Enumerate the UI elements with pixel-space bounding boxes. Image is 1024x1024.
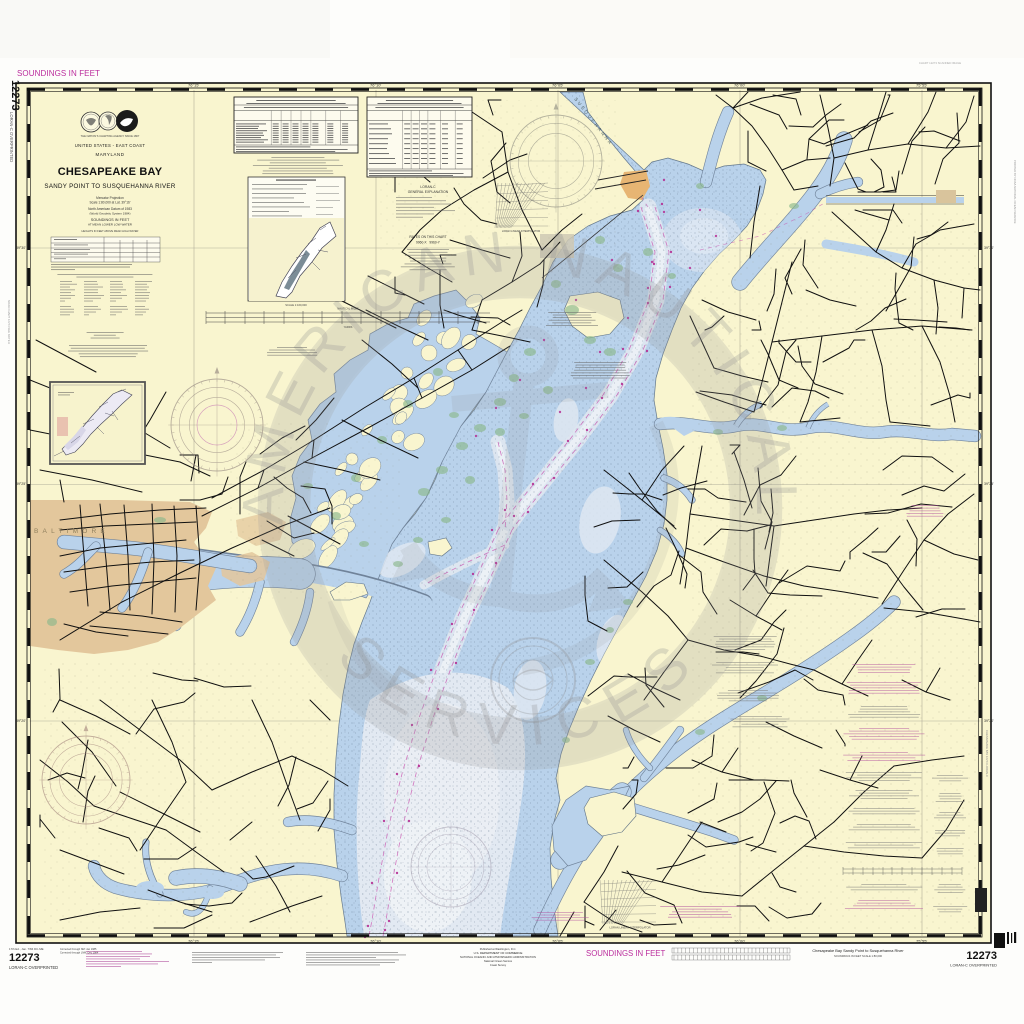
svg-text:Coast Survey: Coast Survey	[490, 963, 507, 967]
svg-text:76°05': 76°05'	[552, 83, 563, 88]
svg-text:HEIGHTS IN FEET ABOVE MEAN HIG: HEIGHTS IN FEET ABOVE MEAN HIGH WATER	[82, 229, 139, 233]
svg-text:75°55': 75°55'	[916, 939, 927, 944]
svg-text:National Ocean Service: National Ocean Service	[484, 959, 513, 963]
svg-text:17th Ed., Jan. 7/84 DC-ME: 17th Ed., Jan. 7/84 DC-ME	[9, 947, 44, 951]
svg-text:LORAN LINEAR INTERPOLATOR: LORAN LINEAR INTERPOLATOR	[609, 926, 650, 930]
svg-text:Scale 1:80,000 at Lat. 39°16’: Scale 1:80,000 at Lat. 39°16’	[90, 201, 131, 205]
svg-text:NATIONAL OCEANIC AND ATMOSPHER: NATIONAL OCEANIC AND ATMOSPHERIC ADMINIS…	[460, 955, 536, 959]
svg-text:GENERAL EXPLANATION: GENERAL EXPLANATION	[408, 190, 449, 194]
svg-text:UNITED STATES - EAST COAST: UNITED STATES - EAST COAST	[75, 143, 146, 148]
svg-text:BALTIMORE: BALTIMORE	[34, 528, 109, 535]
svg-text:39°20': 39°20'	[16, 719, 26, 723]
svg-text:NOAA CHART 12273 SEE NOTE A: NOAA CHART 12273 SEE NOTE A	[7, 300, 11, 344]
svg-text:AT MEAN LOWER LOW WATER: AT MEAN LOWER LOW WATER	[88, 223, 133, 227]
svg-text:76°00': 76°00'	[734, 939, 745, 944]
svg-text:U.S. DEPARTMENT OF COMMERCE: U.S. DEPARTMENT OF COMMERCE	[474, 951, 523, 955]
svg-text:SANDY POINT TO SUSQUEHANNA RIV: SANDY POINT TO SUSQUEHANNA RIVER	[44, 183, 175, 190]
svg-text:76°10': 76°10'	[370, 939, 381, 944]
svg-text:LORAN-C OVERPRINTED: LORAN-C OVERPRINTED	[950, 963, 997, 968]
svg-text:39°25': 39°25'	[16, 482, 26, 486]
svg-text:39°30': 39°30'	[984, 246, 994, 250]
svg-text:YARDS: YARDS	[344, 325, 353, 329]
svg-text:76°15': 76°15'	[188, 939, 199, 944]
svg-text:LORAN-C OVERPRINTED: LORAN-C OVERPRINTED	[9, 112, 14, 162]
svg-text:Mercator Projection: Mercator Projection	[96, 196, 124, 200]
svg-text:SOUNDINGS IN FEET: SOUNDINGS IN FEET	[586, 949, 666, 958]
svg-text:SOUNDINGS IN FEET SCALE 1:80: SOUNDINGS IN FEET SCALE 1:80,000	[834, 954, 883, 958]
svg-text:12273: 12273	[9, 80, 21, 111]
svg-text:SCALE 1:160,000: SCALE 1:160,000	[285, 303, 307, 307]
svg-text:39°20': 39°20'	[984, 719, 994, 723]
svg-text:North American Datum of 1983: North American Datum of 1983	[88, 207, 132, 211]
svg-text:12273: 12273	[9, 952, 40, 964]
svg-text:Chesapeake Bay Sandy Point to: Chesapeake Bay Sandy Point to Susquehann…	[812, 948, 904, 953]
svg-text:12273: 12273	[966, 950, 997, 962]
svg-text:76°10': 76°10'	[370, 83, 381, 88]
svg-text:(World Geodetic System 1984): (World Geodetic System 1984)	[90, 212, 131, 216]
svg-text:SOUNDINGS IN FEET: SOUNDINGS IN FEET	[17, 69, 100, 78]
svg-text:CHART 12273 SCANNED IMAGE: CHART 12273 SCANNED IMAGE	[919, 61, 961, 65]
svg-text:75°55': 75°55'	[916, 83, 927, 88]
svg-text:LORAN LINEAR INTERPOLATOR: LORAN LINEAR INTERPOLATOR	[502, 230, 540, 233]
svg-text:PRINTED BY NOAA NATIONAL OCEAN: PRINTED BY NOAA NATIONAL OCEAN SERVICE	[1013, 160, 1017, 224]
svg-text:76°15': 76°15'	[188, 83, 199, 88]
svg-text:LORAN-C: LORAN-C	[420, 185, 436, 189]
svg-text:76°05': 76°05'	[552, 939, 563, 944]
svg-text:MARYLAND: MARYLAND	[95, 152, 124, 157]
svg-text:NAUTICAL MILES: NAUTICAL MILES	[337, 307, 359, 311]
svg-text:CHESAPEAKE BAY 12273 LORAN-C: CHESAPEAKE BAY 12273 LORAN-C	[985, 730, 989, 777]
svg-text:LORAN-C OVERPRINTED: LORAN-C OVERPRINTED	[9, 965, 58, 970]
svg-text:39°30': 39°30'	[16, 246, 26, 250]
svg-text:SOUNDINGS IN FEET: SOUNDINGS IN FEET	[91, 218, 130, 222]
svg-text:THE NATION’S CHARTING AGENCY S: THE NATION’S CHARTING AGENCY SINCE 1807	[81, 134, 140, 138]
svg-text:9960-X 9960-Y: 9960-X 9960-Y	[416, 241, 441, 245]
svg-text:39°25': 39°25'	[984, 482, 994, 486]
svg-text:76°00': 76°00'	[734, 83, 745, 88]
svg-text:RATES ON THIS CHART: RATES ON THIS CHART	[409, 235, 446, 239]
svg-text:CHESAPEAKE BAY: CHESAPEAKE BAY	[58, 166, 163, 178]
